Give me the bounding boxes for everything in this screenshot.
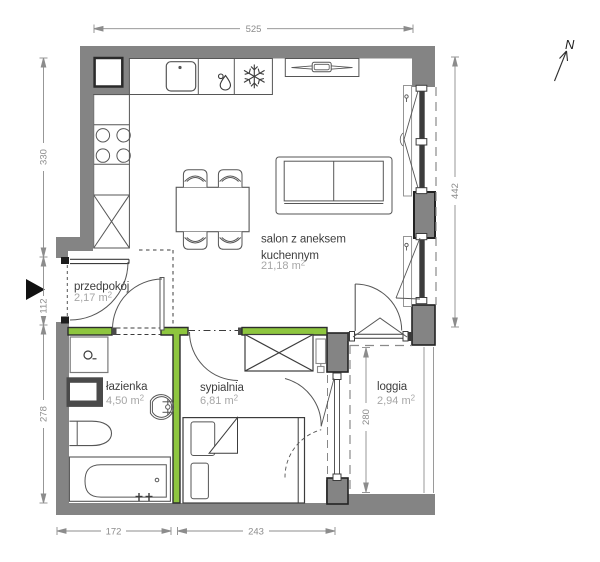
svg-text:łazienka: łazienka — [106, 381, 148, 393]
svg-text:525: 525 — [246, 24, 262, 35]
svg-text:112: 112 — [39, 298, 50, 313]
svg-text:2,17 m2: 2,17 m2 — [74, 291, 113, 305]
svg-text:278: 278 — [39, 406, 50, 422]
svg-text:2,94 m2: 2,94 m2 — [377, 394, 416, 408]
svg-text:280: 280 — [361, 409, 372, 425]
svg-text:21,18 m2: 21,18 m2 — [261, 259, 306, 273]
svg-text:330: 330 — [39, 149, 50, 165]
svg-text:N: N — [565, 37, 575, 52]
svg-text:243: 243 — [248, 527, 264, 538]
svg-text:4,50 m2: 4,50 m2 — [106, 394, 145, 408]
svg-text:salon z aneksem: salon z aneksem — [261, 234, 346, 246]
svg-text:172: 172 — [106, 527, 122, 538]
svg-text:6,81 m2: 6,81 m2 — [200, 394, 239, 408]
svg-text:loggia: loggia — [377, 381, 408, 393]
svg-text:sypialnia: sypialnia — [200, 382, 245, 394]
svg-text:442: 442 — [450, 183, 461, 199]
